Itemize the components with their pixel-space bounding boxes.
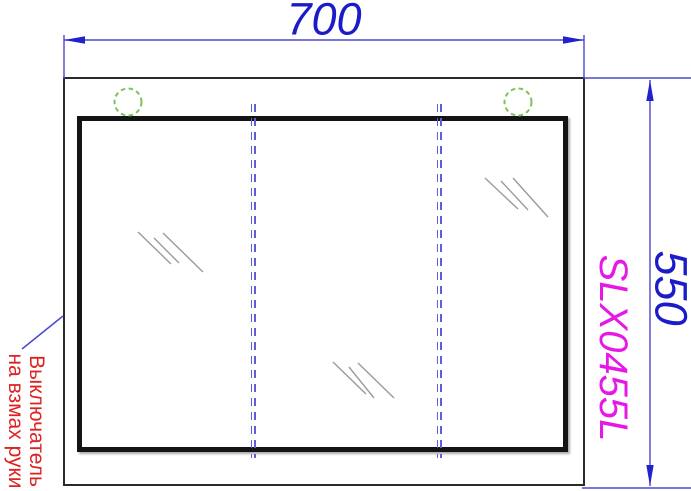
callout-line-2: на взмах руки xyxy=(5,354,26,489)
door-split-line-left-strip-a xyxy=(251,104,253,458)
arrow-down-icon xyxy=(646,465,653,486)
callout-line-1: Выключатель xyxy=(26,354,47,489)
door-split-line-right-strip-b xyxy=(440,104,442,458)
height-dimension-label: 550 xyxy=(649,250,691,325)
product-code-label: SLX0455L xyxy=(593,255,633,442)
width-dimension-label: 700 xyxy=(286,0,361,42)
door-split-line-right xyxy=(437,104,442,458)
door-split-line-left-strip-b xyxy=(254,104,256,458)
mirror-frame xyxy=(77,116,568,452)
door-split-line-left xyxy=(251,104,256,458)
arrow-right-icon xyxy=(563,36,584,44)
technical-drawing: 700 550 SLX0455L Выключатель на взмах ру… xyxy=(0,0,691,491)
hand-wave-switch-callout: Выключатель на взмах руки xyxy=(5,354,47,489)
arrow-up-icon xyxy=(646,80,653,101)
arrow-left-icon xyxy=(64,36,85,44)
door-split-line-right-strip-a xyxy=(437,104,439,458)
callout-leader-line xyxy=(22,316,63,349)
